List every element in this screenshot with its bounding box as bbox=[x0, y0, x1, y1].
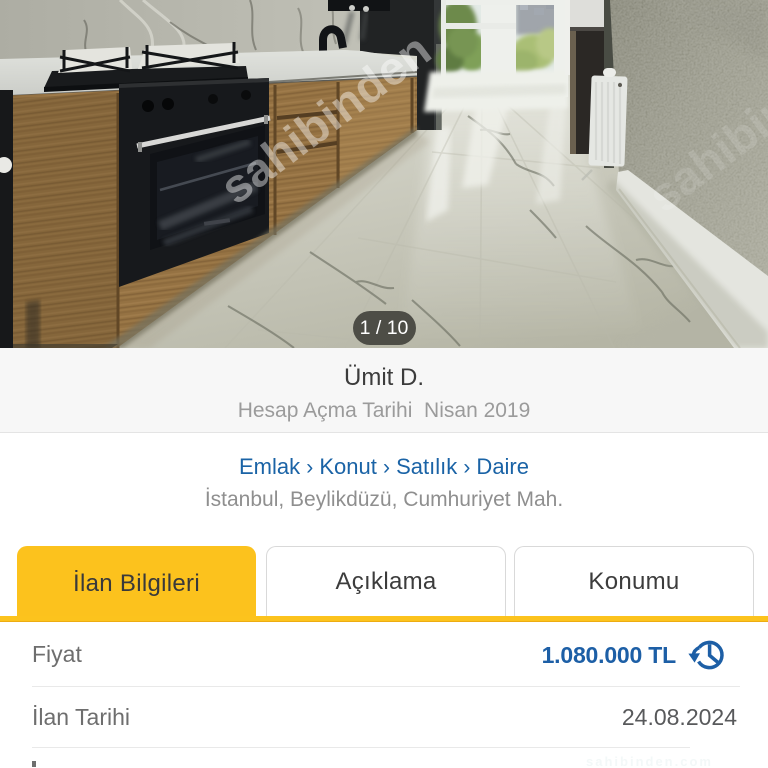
svg-text:1 / 10: 1 / 10 bbox=[360, 317, 409, 339]
